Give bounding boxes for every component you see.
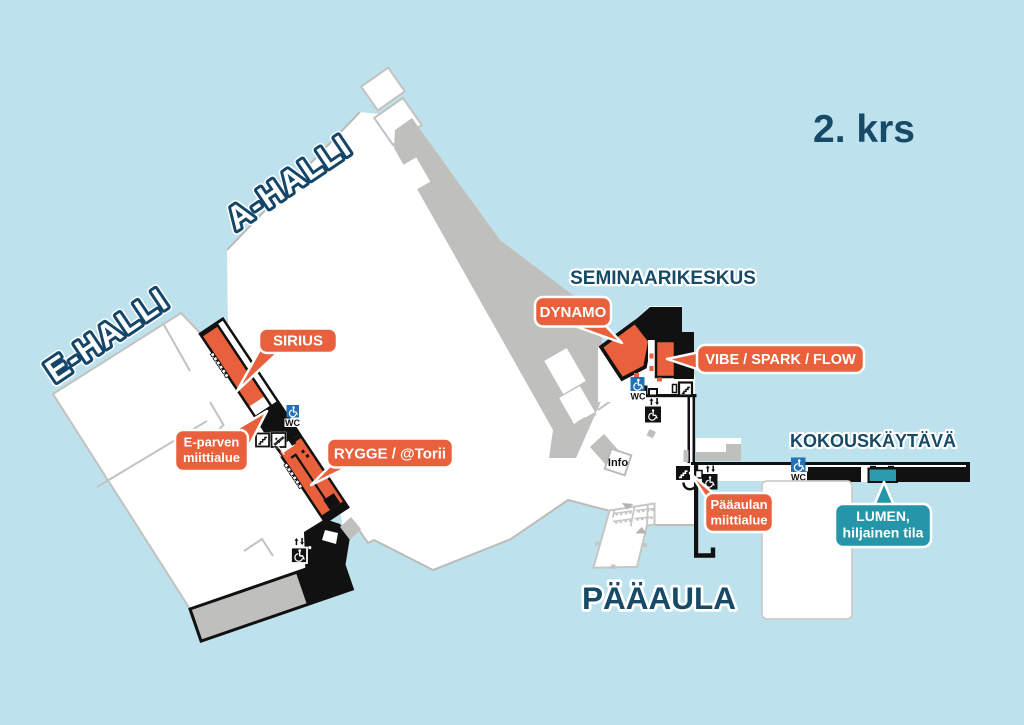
svg-text:Pääaulan: Pääaulan bbox=[710, 497, 767, 512]
svg-text:WC: WC bbox=[285, 418, 300, 428]
svg-text:DYNAMO: DYNAMO bbox=[540, 304, 607, 321]
svg-text:VIBE / SPARK / FLOW: VIBE / SPARK / FLOW bbox=[705, 352, 856, 368]
svg-text:Info: Info bbox=[608, 457, 628, 469]
svg-text:LUMEN,: LUMEN, bbox=[856, 508, 910, 524]
svg-text:2. krs: 2. krs bbox=[813, 108, 915, 151]
svg-text:SEMINAARIKESKUS: SEMINAARIKESKUS bbox=[570, 268, 756, 289]
svg-text:RYGGE / @Torii: RYGGE / @Torii bbox=[334, 446, 446, 463]
svg-text:WC: WC bbox=[631, 392, 646, 402]
svg-text:SIRIUS: SIRIUS bbox=[273, 333, 323, 350]
svg-text:miittialue: miittialue bbox=[183, 450, 240, 465]
svg-text:miittialue: miittialue bbox=[710, 513, 767, 528]
svg-text:KOKOUSKÄYTÄVÄ: KOKOUSKÄYTÄVÄ bbox=[790, 431, 956, 451]
svg-text:PÄÄAULA: PÄÄAULA bbox=[582, 580, 736, 616]
svg-text:hiljainen tila: hiljainen tila bbox=[843, 525, 924, 541]
svg-text:E-parven: E-parven bbox=[184, 435, 240, 450]
